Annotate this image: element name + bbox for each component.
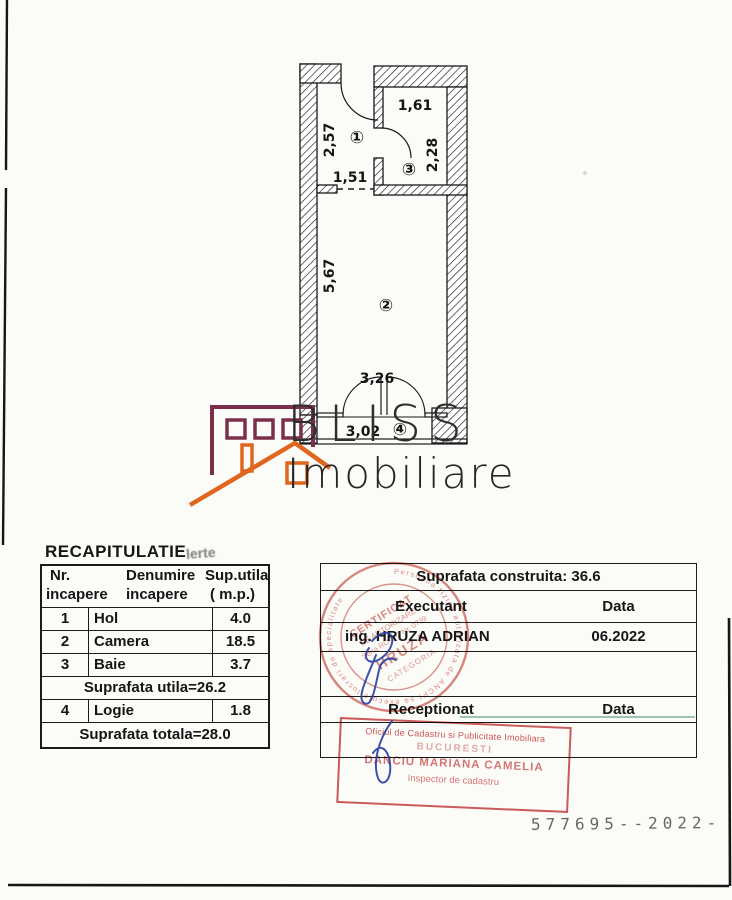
table-row: 4 Logie 1.8 — [42, 700, 268, 723]
receptionat-signature — [360, 715, 420, 795]
header-denumire-2: incapere — [126, 586, 188, 603]
recap-table: Nr. incapere Denumire incapere Sup.utila… — [40, 564, 270, 749]
data-label-2: Data — [541, 697, 696, 722]
recap-smudge-text: lerte — [185, 544, 216, 562]
header-suputila-2: ( m.p.) — [210, 586, 255, 603]
dim-room1-height: 2,57 — [322, 123, 338, 158]
dim-room3-width: 1,61 — [398, 98, 433, 114]
scanned-cadastral-document: 2,57 ① 1,51 1,61 2,28 ③ 5,67 ② 3,26 3,02… — [0, 0, 732, 900]
row-name: Baie — [89, 654, 213, 676]
brand-name: BLISS — [287, 396, 471, 452]
header-denumire: Denumire — [126, 567, 195, 584]
room3-number: ③ — [402, 160, 416, 180]
green-scan-line — [460, 716, 695, 718]
row-area: 4.0 — [213, 608, 268, 630]
row-nr: 3 — [42, 654, 89, 676]
row-nr: 1 — [42, 608, 89, 630]
dim-room1-width: 1,51 — [333, 170, 368, 186]
dim-room2-height: 5,67 — [322, 259, 338, 294]
brand-subtitle: Imobiliare — [287, 449, 516, 499]
subtotal-row: Suprafata utila=26.2 — [42, 677, 268, 700]
recap-title: RECAPITULATIE — [45, 542, 186, 562]
header-nr: Nr. — [50, 567, 70, 584]
registration-serial: 577695--2022- — [531, 813, 721, 834]
total-row: Suprafata totala=28.0 — [42, 723, 268, 747]
dim-room3-height: 2,28 — [425, 138, 441, 173]
row-area: 18.5 — [213, 631, 268, 653]
row-name: Logie — [89, 700, 213, 722]
room1-number: ① — [350, 128, 364, 148]
floor-plan: 2,57 ① 1,51 1,61 2,28 ③ 5,67 ② 3,26 3,02… — [293, 55, 473, 450]
row-area: 1.8 — [213, 700, 268, 722]
row-nr: 4 — [42, 700, 89, 722]
dim-room2-width: 3,26 — [360, 371, 395, 387]
table-row: 2 Camera 18.5 — [42, 631, 268, 654]
executant-date: 06.2022 — [541, 623, 696, 651]
executant-signature — [348, 618, 418, 713]
row-name: Hol — [89, 608, 213, 630]
data-label: Data — [541, 591, 696, 622]
row-nr: 2 — [42, 631, 89, 653]
room2-number: ② — [379, 296, 393, 316]
header-nr-2: incapere — [46, 586, 108, 603]
row-area: 3.7 — [213, 654, 268, 676]
row-name: Camera — [89, 631, 213, 653]
header-suputila: Sup.utila — [205, 567, 268, 584]
recap-table-header: Nr. incapere Denumire incapere Sup.utila… — [42, 566, 268, 608]
table-row: 1 Hol 4.0 — [42, 608, 268, 631]
table-row: 3 Baie 3.7 — [42, 654, 268, 677]
